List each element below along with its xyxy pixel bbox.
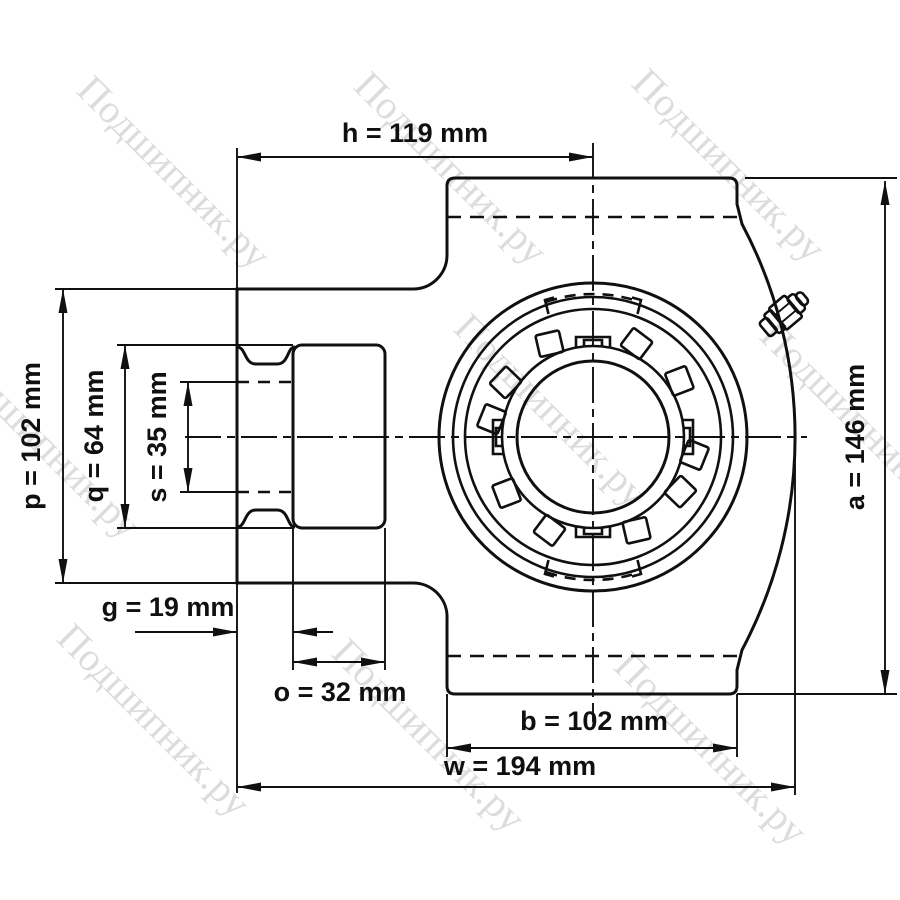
top-slot-hook-right — [632, 298, 641, 315]
arrow-g-left — [213, 628, 237, 637]
arrow-s-bottom — [184, 468, 193, 492]
arrow-a-bottom — [881, 670, 890, 694]
watermark-text: Подшипник.ру — [49, 615, 260, 826]
hub-neck-top — [237, 347, 295, 364]
arrow-p-top — [59, 289, 68, 313]
dim-label-g: g = 19 mm — [102, 592, 235, 622]
collar-tooth — [492, 478, 521, 508]
watermark-text: Подшипник.ру — [752, 313, 900, 524]
watermark-text: Подшипник.ру — [324, 630, 535, 841]
take-up-bearing-unit-drawing: h = 119 mm p = 102 mm q = 64 mm s = 35 m… — [0, 0, 900, 900]
arrow-s-top — [184, 382, 193, 406]
collar-tooth — [535, 330, 563, 357]
arrow-a-top — [881, 181, 890, 205]
arrow-h-right — [569, 153, 593, 162]
collar-tooth — [665, 366, 694, 396]
arrow-p-bottom — [59, 559, 68, 583]
dim-label-s: s = 35 mm — [142, 371, 172, 502]
extension-lines — [55, 148, 897, 795]
arrow-h-left — [237, 153, 261, 162]
collar-tooth — [664, 475, 696, 508]
arrow-o-left — [293, 658, 317, 667]
collar-tooth — [620, 328, 652, 360]
watermark-text: Подшипник.ру — [624, 60, 835, 271]
watermarks: Подшипник.ру Подшипник.ру Подшипник.ру П… — [0, 60, 900, 854]
collar-tooth — [622, 517, 650, 544]
bottom-slot-hook-right — [632, 560, 641, 577]
technical-drawing-page: h = 119 mm p = 102 mm q = 64 mm s = 35 m… — [0, 0, 900, 900]
watermark-text: Подшипник.ру — [69, 67, 280, 278]
arrow-q-top — [121, 345, 130, 369]
watermark-text: Подшипник.ру — [346, 63, 557, 274]
watermark-text: Подшипник.ру — [446, 305, 657, 516]
arrowheads — [59, 153, 890, 792]
collar-tooth — [533, 514, 565, 546]
hub-neck-bottom — [237, 510, 295, 527]
grease-fitting-tip — [794, 291, 809, 307]
arrow-g-right — [293, 628, 317, 637]
